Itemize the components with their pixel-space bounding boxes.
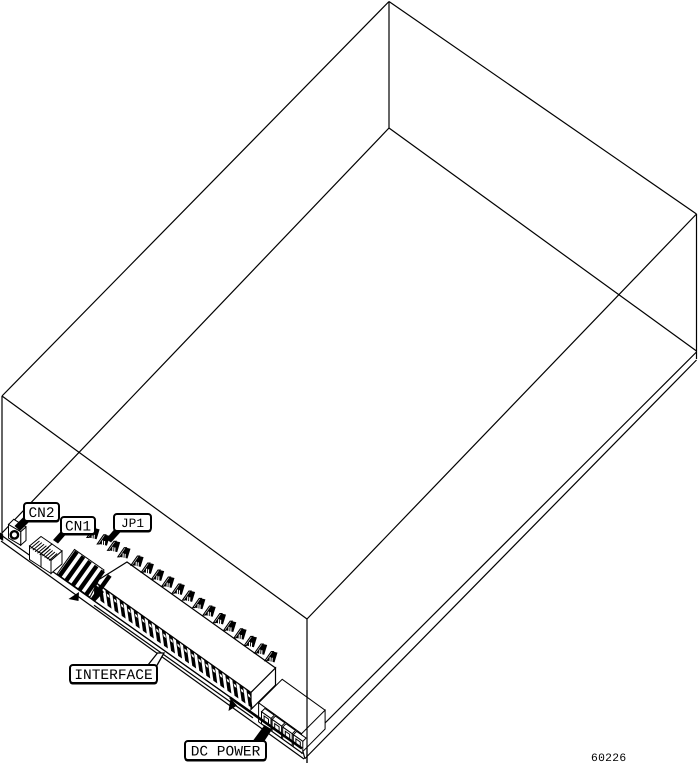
svg-text:CN1: CN1	[65, 520, 91, 536]
svg-text:60226: 60226	[591, 753, 626, 765]
svg-text:DC POWER: DC POWER	[191, 745, 261, 761]
svg-text:INTERFACE: INTERFACE	[74, 668, 152, 684]
svg-text:JP1: JP1	[121, 516, 144, 531]
svg-text:CN2: CN2	[28, 506, 54, 522]
